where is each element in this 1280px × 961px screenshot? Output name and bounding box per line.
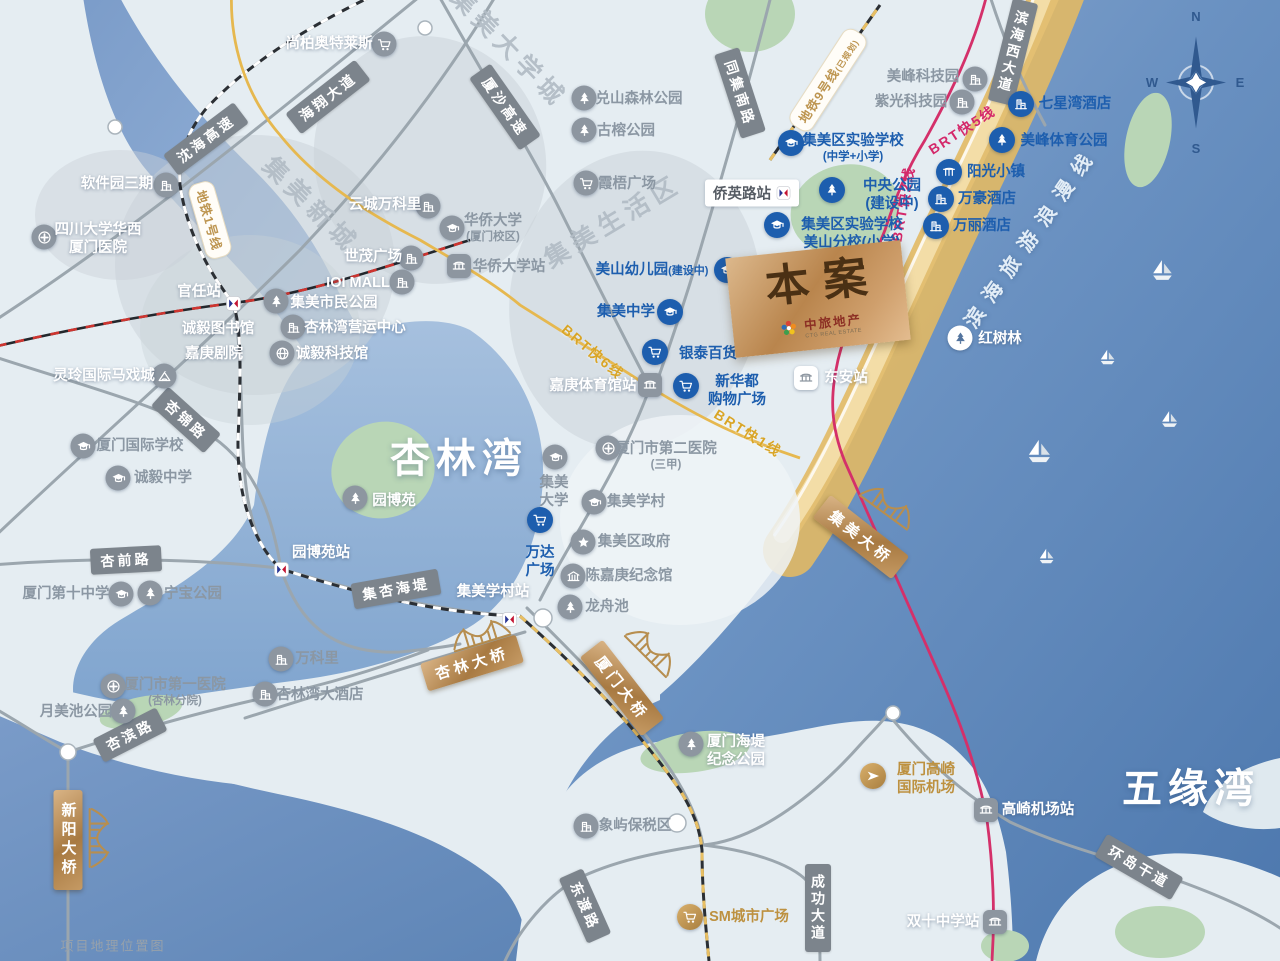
tree-icon <box>572 118 597 143</box>
transit-label: 地铁1号线 <box>186 179 233 261</box>
road-label: 海翔大道 <box>285 60 370 135</box>
cart-icon <box>642 339 668 365</box>
poi-label: 中央公园(建设中) <box>863 177 921 213</box>
gate-icon <box>936 159 962 185</box>
grad-icon <box>71 434 96 459</box>
station-label: 东安站 <box>824 369 868 387</box>
poi-label: 尚柏奥特莱斯 <box>286 35 373 53</box>
compass-rose: N W E S <box>1158 25 1234 146</box>
poi-label: 七星湾酒店 <box>1039 95 1112 113</box>
brt-station-icon <box>447 254 471 278</box>
bldg-icon <box>574 814 599 839</box>
map-caption: 项目地理位置图 <box>60 936 165 955</box>
poi-label: 园博苑 <box>372 492 416 510</box>
bldg-icon <box>399 246 424 271</box>
poi-label: 霞梧广场 <box>598 175 656 193</box>
metro-station-icon <box>270 558 293 581</box>
station-label: 官任站 <box>177 283 221 301</box>
cart-icon <box>677 904 703 930</box>
poi-label: 厦门市第二医院(三甲) <box>615 440 717 473</box>
station-label: 嘉庚体育馆站 <box>550 377 637 395</box>
poi-label: 银泰百货 <box>679 345 737 363</box>
station-label: 双十中学站 <box>907 913 980 931</box>
poi-label: 杏林湾大酒店 <box>277 686 364 704</box>
road-label: 同集南路 <box>714 47 766 139</box>
road-label: 集杏海堤 <box>350 569 441 610</box>
station-label: 华侨大学站 <box>473 258 546 276</box>
sailboat-icon <box>1160 409 1179 428</box>
tree-icon <box>679 732 704 757</box>
bridge-label: 新阳大桥 <box>54 790 83 890</box>
poi-label: 厦门高崎国际机场 <box>897 761 955 797</box>
poi-label: 集美区实验学校(中学+小学) <box>802 132 904 165</box>
cart-icon <box>372 32 397 57</box>
tree-icon <box>572 86 597 111</box>
road-label: 东渡路 <box>559 868 612 943</box>
poi-label: 杏林湾营运中心 <box>304 319 406 337</box>
plane-icon <box>860 763 886 789</box>
tree-icon <box>138 581 163 606</box>
grad-icon <box>582 490 607 515</box>
poi-label: 灵玲国际马戏城 <box>53 367 155 385</box>
water-label: 五缘湾 <box>1122 756 1260 814</box>
poi-label: 诚毅图书馆 <box>182 320 255 338</box>
grad-icon <box>543 445 568 470</box>
brt-station-icon <box>974 798 998 822</box>
poi-label: 万科里 <box>295 650 339 668</box>
poi-label: 华侨大学(厦门校区) <box>464 212 522 245</box>
cart-icon <box>574 171 599 196</box>
poi-label: 新华都购物广场 <box>708 373 766 409</box>
poi-label: 嘉庚剧院 <box>185 345 243 363</box>
poi-label: 月美池公园 <box>40 703 113 721</box>
grad-icon <box>657 299 683 325</box>
poi-label: 红树林 <box>978 330 1022 348</box>
labels-layer: 集美大学城集美新城集美生活区杏林湾五缘湾滨海旅游浪漫线沈海高速海翔大道厦沙高速同… <box>0 0 1280 961</box>
tree-icon <box>558 595 583 620</box>
bridge-icon <box>81 807 117 869</box>
compass-e: E <box>1236 75 1245 90</box>
project-title: 本案 <box>763 254 883 310</box>
poi-label: 古榕公园 <box>597 122 655 140</box>
transit-label: 地铁9号线(已规划) <box>786 25 871 135</box>
globe-icon <box>270 341 295 366</box>
poi-label: 厦门市第一医院(杏林分院) <box>124 676 226 709</box>
poi-label: 龙舟池 <box>585 598 629 616</box>
poi-label: IOI MALL <box>326 274 390 292</box>
brt-station-icon <box>794 366 818 390</box>
project-marker: 本案 中旅地产 CTG REAL ESTATE <box>725 240 910 358</box>
grad-icon <box>764 212 790 238</box>
poi-label: SM城市广场 <box>709 908 789 926</box>
museum-icon <box>561 564 586 589</box>
poi-label: 万丽酒店 <box>953 217 1011 235</box>
compass-s: S <box>1192 141 1201 156</box>
sailboat-icon <box>1099 348 1117 366</box>
poi-label: 诚毅中学 <box>134 469 192 487</box>
grad-icon <box>106 466 131 491</box>
poi-label: 兑山森林公园 <box>596 90 683 108</box>
bldg-icon <box>950 90 975 115</box>
poi-label: 万豪酒店 <box>958 190 1016 208</box>
poi-label: 厦门第十中学 <box>23 585 110 603</box>
poi-label: 美峰科技园 <box>887 68 960 86</box>
bldg-icon <box>154 173 179 198</box>
brt-station-icon <box>638 373 662 397</box>
poi-label: 厦门海堤纪念公园 <box>707 733 765 769</box>
poi-label: 诚毅科技馆 <box>296 345 369 363</box>
tree-icon <box>264 289 289 314</box>
metro-icon <box>776 186 791 201</box>
grad-icon <box>778 130 804 156</box>
grad-icon <box>440 216 465 241</box>
poi-label: 四川大学华西厦门医院 <box>55 221 142 257</box>
poi-label: 万达广场 <box>526 544 555 580</box>
transit-label: BRT快1线 <box>710 404 786 462</box>
brand-lockup: 中旅地产 CTG REAL ESTATE <box>778 308 863 342</box>
hosp-icon <box>101 674 126 699</box>
station-qiaoyinglu: 侨英路站 <box>705 180 799 207</box>
brt-station-icon <box>983 910 1007 934</box>
road-label: 沈海高速 <box>163 102 249 176</box>
road-label: 滨海西大道 <box>988 0 1039 106</box>
poi-label: 陈嘉庚纪念馆 <box>586 567 673 585</box>
station-label: 高崎机场站 <box>1002 801 1075 819</box>
bldg-icon <box>923 213 949 239</box>
compass-icon <box>1158 25 1234 141</box>
sailboat-icon <box>1026 437 1053 464</box>
cart-icon <box>527 507 553 533</box>
bldg-icon <box>253 682 278 707</box>
star-icon <box>571 530 596 555</box>
bldg-icon <box>1008 91 1034 117</box>
bldg-icon <box>281 315 306 340</box>
road-label: 环岛干道 <box>1094 834 1183 901</box>
water-label: 杏林湾 <box>390 426 528 484</box>
bldg-icon <box>928 186 954 212</box>
transit-label: BRT快6线 <box>557 320 629 385</box>
bldg-icon <box>390 270 415 295</box>
tree-icon <box>819 177 845 203</box>
poi-label: 厦门国际学校 <box>97 437 184 455</box>
poi-label: 宁宝公园 <box>164 585 222 603</box>
bldg-icon <box>269 647 294 672</box>
poi-label: 美峰体育公园 <box>1021 132 1108 150</box>
ctg-logo-icon <box>778 317 800 339</box>
tree-icon <box>948 326 973 351</box>
grad-icon <box>109 582 134 607</box>
hosp-icon <box>32 225 57 250</box>
metro-station-icon <box>222 292 245 315</box>
poi-label: 集美市民公园 <box>291 294 378 312</box>
poi-label: 世茂广场 <box>344 248 402 266</box>
road-label: 成功大道 <box>805 864 831 952</box>
road-label: 杏前路 <box>90 545 162 575</box>
poi-label: 软件园三期 <box>81 175 154 193</box>
poi-label: 集美学村 <box>607 493 665 511</box>
poi-label: 美山幼儿园(建设中) <box>596 261 709 279</box>
tree-icon <box>343 486 368 511</box>
poi-label: 象屿保税区 <box>599 817 672 835</box>
compass-n: N <box>1191 9 1200 24</box>
poi-label: 紫光科技园 <box>875 93 948 111</box>
station-label: 集美学村站 <box>457 583 530 601</box>
location-map: 集美大学城集美新城集美生活区杏林湾五缘湾滨海旅游浪漫线沈海高速海翔大道厦沙高速同… <box>0 0 1280 961</box>
cart-icon <box>673 373 699 399</box>
metro-station-icon <box>498 608 521 631</box>
sailboat-icon <box>1038 547 1056 565</box>
tree-icon <box>989 127 1015 153</box>
compass-w: W <box>1146 75 1158 90</box>
poi-label: 集美区政府 <box>598 533 671 551</box>
poi-label: 阳光小镇 <box>967 163 1025 181</box>
tent-icon <box>152 364 177 389</box>
station-label: 园博苑站 <box>292 544 350 562</box>
poi-label: 云城万科里 <box>349 196 422 214</box>
poi-label: 集美中学 <box>597 303 655 321</box>
bldg-icon <box>963 67 988 92</box>
poi-label: 集美大学 <box>540 474 569 510</box>
sailboat-icon <box>1151 258 1175 282</box>
